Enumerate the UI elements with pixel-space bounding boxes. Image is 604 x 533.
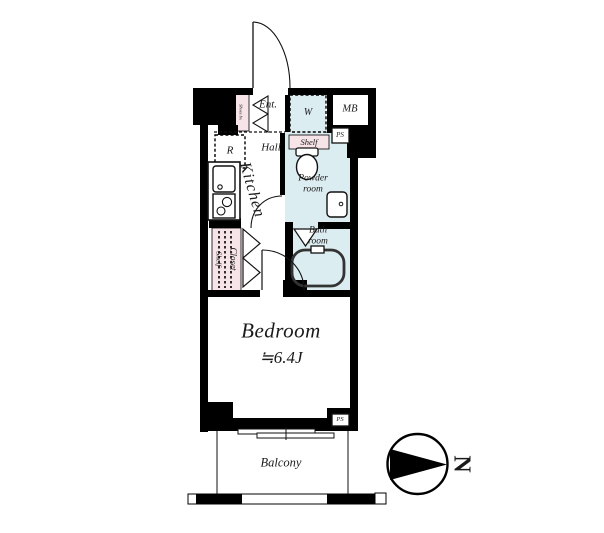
wall-bedroom-top-left [201,290,260,297]
hall-label: Hall [261,141,281,154]
bath-room-label: Bath room [301,226,335,249]
entrance-door-swing [253,22,290,88]
wall-top-left-block [193,88,236,125]
site-boundary-black [327,494,375,504]
stove-burner [217,207,225,215]
bedroom-label: Bedroom [241,318,321,343]
closet-bifold-door [243,258,260,287]
entrance-label: Ent. [259,98,277,111]
refrigerator-label: R [227,144,234,157]
wall-top-right [288,88,376,95]
washbasin-faucet [339,202,343,206]
closet-shelf-label: Shelf [215,252,224,267]
meter-box-label: MB [342,104,357,117]
wall-left [200,123,208,432]
site-boundary-black [196,494,242,504]
powder-room-label: Powder room [289,174,337,197]
pipe-space-lower-label: PS [336,416,343,424]
compass-north-label: N [447,455,476,472]
wall-bottom-left-block [200,402,233,431]
washer-label: W [304,107,312,119]
shelf-upper-label: Shelf [301,137,318,147]
wall-top-left [236,88,253,95]
closet-bifold-door [243,229,260,258]
bedroom-size-label: ≒6.4J [259,348,302,368]
site-boundary-end [375,493,386,504]
window-pane [257,433,334,438]
floorplan-drawing [0,0,604,533]
shoes-box-label: Shoes bx [238,104,243,120]
wall-right [350,133,358,431]
pipe-space-upper-label: PS [336,131,344,139]
sink-faucet [218,185,222,189]
balcony-label: Balcony [261,456,302,471]
kitchen-sink [213,166,235,192]
shoes-box-door [253,114,268,132]
wall-ent-washer [285,95,290,132]
closet-label: Closet [228,247,239,270]
stove-burner [222,197,231,206]
floorplan-page: Ent. W MB PS PS R Hall Kitchen Shoes bx … [0,0,604,533]
wall-bedroom-top-right [300,290,358,297]
